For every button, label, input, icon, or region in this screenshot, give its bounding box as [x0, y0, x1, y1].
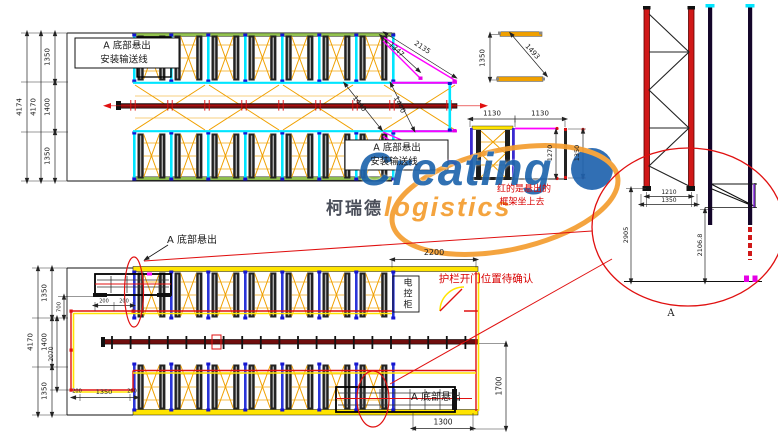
dim-top-inner: 4170 — [31, 98, 38, 116]
dim-mid-h-inner: 1270 — [547, 145, 554, 162]
dim-bp-700: 700 — [57, 302, 63, 313]
dim-bp-bot1350: 1350 — [96, 389, 113, 396]
dim-mid-h-outer: 1350 — [574, 145, 581, 162]
dim-elev-outer-width: 1350 — [661, 198, 676, 204]
red-note-frame-line2: 框架坐上去 — [499, 199, 544, 208]
dim-bp-outer: 4170 — [28, 333, 35, 351]
cabinet-label: 电控柜 — [402, 278, 411, 311]
dim-elev-right-height: 2106.8 — [697, 234, 704, 257]
dim-bp-row1: 1350 — [42, 284, 49, 302]
dim-bp-2200: 2200 — [424, 249, 444, 257]
dim-top-outer: 4174 — [17, 98, 24, 116]
red-note-frame-line1: 红的是悬出的 — [497, 186, 551, 195]
note-box1-line1: A 底部悬出 — [103, 41, 151, 51]
dim-bp-1300: 1300 — [433, 418, 452, 426]
dim-top-row2: 1400 — [45, 98, 52, 116]
note-box2-line2: 安装输送线 — [370, 157, 418, 167]
note-box1-line2: 安装输送线 — [100, 55, 148, 65]
dim-mid-w1: 1130 — [483, 111, 501, 118]
note-box2-line1: A 底部悬出 — [373, 143, 421, 153]
detail-circle-label: A — [667, 309, 674, 319]
dim-mid-w2: 1130 — [531, 111, 549, 118]
dim-bp-1700: 1700 — [495, 376, 503, 395]
dim-bp-bot200b: 200 — [127, 390, 137, 395]
annotation-overlay — [0, 0, 778, 441]
dim-bp-bot200a: 200 — [72, 390, 82, 395]
dim-elev-left-height: 2905 — [623, 227, 630, 244]
cad-drawing-page: Creating 柯瑞德 logistics 4174 4170 1350 14… — [0, 0, 778, 441]
red-note-guardrail: 护栏开门位置待确认 — [439, 274, 534, 285]
dim-bp-200a: 200 — [99, 300, 109, 305]
dim-corner-height: 1350 — [480, 49, 487, 67]
dim-top-row3: 1350 — [45, 147, 52, 165]
bp-note-top: A 底部悬出 — [167, 236, 217, 246]
dim-elev-inner-width: 1210 — [661, 190, 676, 196]
dim-bp-200b: 200 — [119, 300, 129, 305]
bp-note-bottom: A 底部悬出 — [411, 393, 461, 403]
dim-bp-2070: 2070 — [49, 346, 55, 361]
dim-bp-row3: 1350 — [42, 382, 49, 400]
dim-top-row1: 1350 — [45, 48, 52, 66]
